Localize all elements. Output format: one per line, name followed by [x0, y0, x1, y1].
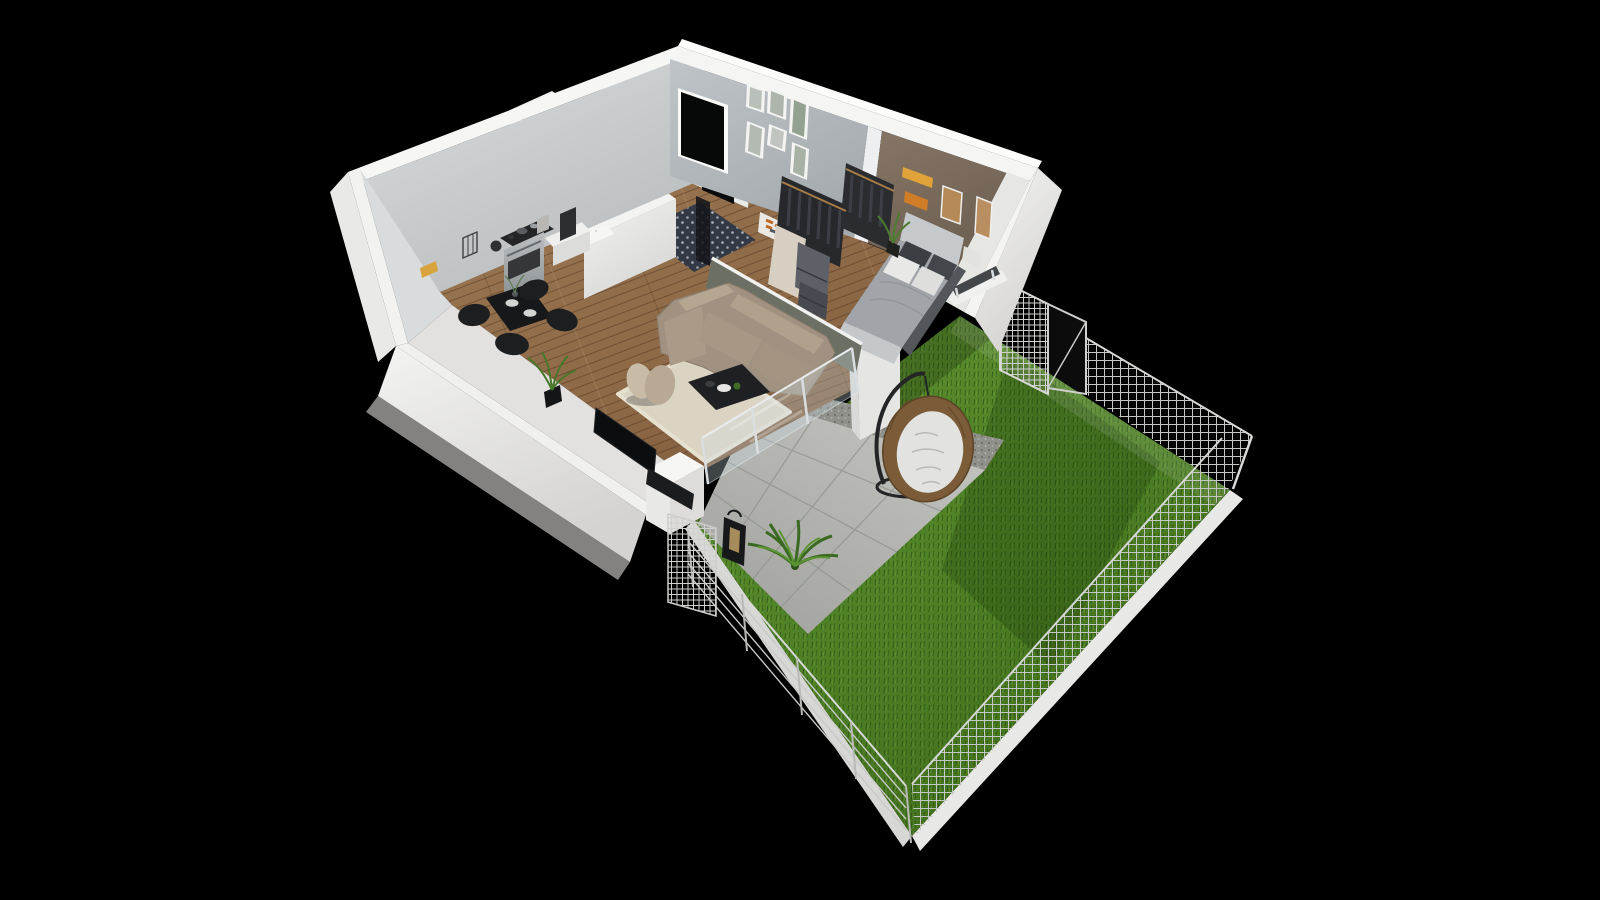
garden-fences-front	[668, 514, 911, 843]
wardrobe-clothes	[788, 175, 882, 248]
egg-chair-rattan-ring	[874, 389, 981, 509]
frame-art	[770, 127, 784, 149]
accent-wall-art	[902, 167, 992, 239]
egg-chair-rattan-rim	[874, 389, 981, 509]
concrete-curb-southeast	[912, 490, 1243, 851]
floorplan-render-canvas	[0, 0, 1600, 900]
wood-floor-planks	[440, 168, 1000, 478]
frame-border	[746, 84, 765, 113]
wall-bottomleft-base	[366, 396, 630, 580]
concrete-curb-southwest	[685, 520, 912, 847]
frame-art	[748, 124, 762, 156]
grass-lawn	[694, 316, 1230, 836]
coffee-table-tray	[717, 384, 731, 392]
terrace-palm-plant	[748, 520, 838, 570]
drawer-unit-top	[795, 242, 830, 302]
olive-divider-wall	[706, 258, 862, 374]
artwork-orange-wide	[902, 167, 933, 188]
sofa-back-cushion-right	[730, 294, 824, 354]
sofa-back-cushion-left	[678, 284, 734, 311]
bathroom-half-wall-face	[584, 199, 676, 299]
apartment	[330, 39, 1062, 580]
fence-corner-post	[1233, 436, 1252, 489]
egg-chair-base-ring	[877, 477, 943, 497]
wall-bottomleft-outerface	[378, 346, 646, 562]
bedroom-corner-block-side	[848, 330, 860, 440]
south-pillar-face-right	[670, 466, 704, 534]
wire-fence-rails	[688, 530, 906, 830]
console-shelf	[758, 212, 790, 246]
glass-pane	[702, 348, 858, 484]
oven-window	[508, 248, 540, 280]
wall-left-topface	[348, 169, 408, 346]
oven-front	[504, 232, 544, 298]
bedroom-plant-pot	[886, 240, 900, 258]
kettle	[491, 241, 502, 252]
bed-headboard	[900, 212, 964, 266]
mesh-fence-panel-left	[668, 514, 716, 616]
wardrobe-rack-left	[776, 176, 846, 267]
frame-border	[790, 142, 809, 180]
frame-art	[749, 87, 762, 110]
entry-door-opening	[681, 92, 724, 170]
bathroom-floor-pattern	[640, 202, 756, 272]
frame-border	[789, 97, 809, 140]
wall-table-perforations	[578, 231, 596, 244]
palm-fronds-light	[758, 530, 830, 566]
bedroom-right-wall-inner	[941, 172, 1030, 312]
gallery-frame	[767, 124, 787, 152]
fence-gate	[1048, 304, 1086, 394]
shower-head-spray	[644, 148, 649, 153]
kitchen-counter-top	[545, 222, 590, 247]
coffee-machine	[560, 207, 576, 241]
wall-pilaster	[854, 126, 882, 243]
floorplan-3d-scene	[0, 0, 1600, 900]
wall-bottomleft-innerface	[408, 305, 688, 505]
bathroom-column-top	[510, 91, 564, 118]
coffee-table	[688, 364, 770, 410]
cooking-pot-small	[508, 235, 514, 239]
stove-cooktop	[500, 220, 554, 247]
hallway	[678, 84, 809, 246]
coffee-table-bowl	[705, 381, 715, 387]
dining-table	[486, 284, 552, 331]
south-pillar-face-left	[646, 470, 670, 534]
egg-chair-tufting	[912, 433, 944, 484]
walls	[330, 39, 1062, 580]
lounge-chair-petal-back	[623, 360, 658, 402]
wall-tv	[594, 408, 656, 474]
lounge-chair-shadow	[626, 394, 666, 406]
frame-art	[770, 91, 784, 117]
artwork-framed-left	[941, 186, 962, 224]
bathroom	[510, 58, 756, 299]
wall-topleft-innerface	[362, 55, 766, 292]
bedroom-window-glass	[952, 266, 1000, 296]
mesh-fence-southeast	[912, 438, 1228, 836]
hanging-egg-chair	[874, 374, 981, 509]
lounge-chair-petal-seat	[641, 362, 679, 407]
egg-chair-hang-link	[925, 376, 929, 400]
house-shadow-on-grass	[694, 316, 992, 548]
wall-bottomleft-topface	[396, 343, 652, 515]
media-console	[646, 468, 694, 510]
frame-border	[767, 88, 787, 120]
yellow-wall-decor	[420, 261, 438, 278]
dining-chair	[517, 276, 552, 304]
corner-sofa	[657, 283, 835, 396]
egg-chair-weave	[890, 400, 965, 438]
drawer-unit-bottom	[798, 282, 828, 320]
wall-topright-outersliver	[678, 39, 1042, 168]
bathroom-tile-wall	[572, 58, 666, 215]
gallery-frame	[745, 121, 765, 159]
frame-art	[793, 145, 806, 177]
coffee-table-plant	[734, 383, 741, 390]
cream-divider-wall	[768, 225, 806, 298]
dining-chair	[494, 331, 531, 358]
bathroom-doorway	[702, 128, 734, 204]
tree-shadow-on-grass	[942, 352, 1160, 668]
garden-fences-back	[912, 280, 1252, 836]
window-chrome-posts	[956, 270, 994, 298]
wall-left-outerface	[330, 172, 396, 362]
wardrobe-rack-right	[840, 163, 894, 249]
bed-pillow-dark-right	[926, 254, 957, 281]
wardrobe-hanger-rails	[782, 169, 894, 211]
gallery-frame	[790, 142, 809, 180]
utensil-basket	[463, 232, 477, 258]
sofa-seat-middle	[698, 312, 762, 366]
kitchen-plant-fronds	[528, 352, 576, 390]
frame-art	[792, 100, 806, 137]
bathroom-floor	[640, 202, 756, 272]
bathroom-column-face	[510, 110, 522, 152]
palm-center	[791, 562, 799, 570]
glass-chrome-posts	[702, 348, 858, 484]
gallery-frame	[767, 88, 787, 120]
sofa-chaise-seat	[664, 306, 706, 366]
living-room	[594, 258, 862, 510]
wire-fence-posts	[688, 530, 911, 843]
dinner-plate-right	[524, 309, 537, 317]
egg-chair-stand	[877, 374, 925, 484]
south-pillar-topface	[646, 452, 704, 484]
wall-left-innerface	[360, 169, 452, 343]
utensil-basket-wires	[468, 234, 473, 256]
console-books	[766, 220, 782, 229]
artwork-framed-right	[975, 197, 992, 239]
egg-chair-cushion	[890, 406, 969, 498]
candle-lantern	[722, 517, 746, 566]
area-rug	[618, 350, 790, 462]
hallway-gallery-wall	[670, 59, 868, 238]
bedroom-corner-block-face	[856, 326, 900, 440]
bedroom	[768, 163, 992, 364]
duvet-folds	[870, 282, 932, 318]
mesh-fence-southeast-rail	[912, 438, 1222, 784]
vase-branches	[505, 275, 524, 293]
wall-mounted-table	[566, 224, 614, 251]
bed-pillow-dark-left	[897, 241, 932, 269]
bed-pillow-light-left	[883, 253, 920, 284]
bathroom-half-wall-top	[572, 190, 676, 241]
bed-pillow-light-right	[911, 266, 945, 296]
wall-right-outerface	[975, 168, 1062, 352]
kitchen-plant-pot	[544, 385, 562, 408]
artwork-orange-small	[904, 191, 928, 211]
kitchen-counter-front	[553, 231, 590, 266]
bedroom-corner-block-top	[848, 316, 900, 340]
grass-texture	[694, 316, 1230, 836]
terrace-items	[722, 374, 982, 570]
fence-gate-brace	[1048, 322, 1086, 388]
dinner-plate-left	[506, 299, 519, 307]
bedroom-accent-wall	[868, 131, 1030, 298]
bedroom-nightstand	[962, 246, 982, 268]
glass-reflections	[730, 394, 802, 442]
gravel-strip	[757, 384, 1004, 470]
sofa-seat-right	[750, 342, 818, 394]
bedroom-window-sill	[948, 270, 1008, 306]
terrace	[698, 384, 1004, 634]
shower-back-wall	[604, 122, 664, 224]
terrace-grout-lines	[713, 417, 941, 607]
palm-fronds-dark	[748, 520, 838, 566]
console-books-gray	[770, 230, 778, 233]
gallery-frame	[746, 84, 765, 113]
lantern-glow	[729, 527, 740, 553]
bed-side-rail	[902, 266, 966, 356]
olive-divider-cap	[712, 258, 862, 344]
wall-right-topface	[964, 168, 1038, 318]
wood-floor	[440, 168, 1000, 478]
frame-border	[745, 121, 765, 159]
kitchen-dining	[420, 207, 590, 408]
glass-balustrade	[702, 348, 858, 484]
gravel-texture	[757, 384, 1004, 470]
table-vase	[512, 291, 518, 297]
dining-chair	[457, 302, 492, 328]
bed-foot-bench	[836, 322, 902, 364]
frame-border	[767, 124, 787, 152]
wall-topleft-topface	[348, 46, 692, 181]
terrace-tiles	[698, 399, 985, 634]
cooking-pot-steel	[530, 224, 538, 229]
wall-topright-topface	[670, 46, 1038, 181]
dining-chair	[544, 305, 580, 334]
gallery-frame	[789, 97, 809, 140]
drawer-lines	[797, 268, 827, 308]
glass-top-rail	[702, 348, 852, 438]
mesh-fence-panel-tall	[1000, 280, 1048, 394]
cooking-pot-large	[517, 228, 528, 234]
mesh-fence-northeast	[1086, 338, 1252, 490]
wire-fence-top-rail	[688, 530, 906, 786]
garden	[685, 316, 1243, 851]
kitchen-canister	[537, 214, 549, 234]
bedroom-plant-leaves	[878, 212, 910, 243]
entry-door-jamb	[678, 88, 728, 174]
grass-highlight-edge	[950, 316, 1230, 506]
bathroom-right-wall	[666, 58, 754, 208]
shower-glass-panel	[696, 196, 710, 266]
mesh-fence-northeast-rail	[1086, 338, 1252, 436]
oven-handle	[507, 241, 541, 256]
bed-mattress	[844, 240, 958, 348]
lantern-handle	[728, 511, 741, 517]
